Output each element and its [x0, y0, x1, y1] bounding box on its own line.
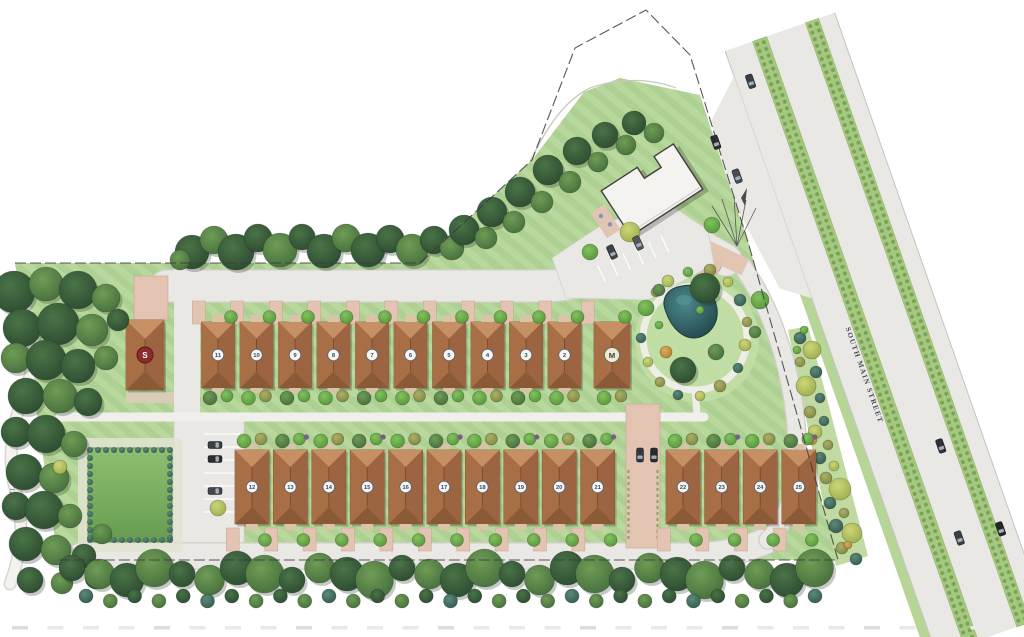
front-stoop: [251, 315, 263, 322]
front-stoop: [443, 315, 455, 322]
tree-icon: [690, 273, 720, 303]
car-icon: [651, 448, 658, 462]
front-stoop: [553, 524, 565, 530]
tree-icon: [687, 594, 701, 608]
tree-icon: [170, 250, 190, 270]
tree-icon: [8, 378, 44, 414]
tree-icon: [711, 589, 725, 603]
tree-icon: [696, 306, 704, 314]
tree-icon: [297, 534, 310, 547]
front-stoop: [520, 315, 532, 322]
front-stoop: [405, 315, 417, 322]
tree-icon: [485, 433, 497, 445]
unit-badge: 11: [215, 353, 222, 359]
tree-icon: [242, 391, 256, 405]
tree-icon: [622, 111, 646, 135]
shrub-icon: [304, 434, 309, 439]
unit-badge: 16: [402, 485, 409, 491]
front-stoop: [438, 524, 450, 530]
tree-icon: [58, 504, 82, 528]
tree-icon: [107, 309, 129, 331]
townhouse-unit: 9: [279, 315, 314, 393]
tree-icon: [527, 534, 540, 547]
tree-icon: [601, 433, 613, 445]
tree-icon: [79, 589, 93, 603]
tree-icon: [803, 341, 821, 359]
front-stoop: [793, 524, 805, 530]
tree-icon: [795, 357, 805, 367]
tree-icon: [475, 227, 497, 249]
tree-icon: [568, 390, 580, 402]
unit-badge: 10: [253, 353, 260, 359]
front-stoop: [515, 524, 527, 530]
tree-icon: [784, 594, 798, 608]
tree-icon: [655, 377, 665, 387]
tree-icon: [745, 434, 759, 448]
tree-icon: [25, 491, 63, 529]
car-icon: [637, 448, 644, 462]
tree-icon: [9, 527, 43, 561]
tree-icon: [695, 391, 705, 401]
tree-icon: [6, 454, 42, 490]
townhouse-unit: 16: [389, 444, 425, 530]
unit-driveway: [582, 301, 595, 324]
tree-icon: [375, 390, 387, 402]
tree-icon: [759, 589, 773, 603]
tree-icon: [489, 534, 502, 547]
front-stoop: [716, 524, 728, 530]
tree-icon: [635, 553, 665, 583]
shrub-icon: [812, 434, 817, 439]
front-stoop: [476, 524, 488, 530]
tree-icon: [531, 191, 553, 213]
tree-icon: [29, 267, 63, 301]
tree-icon: [37, 303, 79, 345]
tree-icon: [733, 363, 743, 373]
tree-icon: [340, 311, 353, 324]
unit-badge: 13: [287, 485, 294, 491]
tree-icon: [452, 390, 464, 402]
tree-icon: [796, 376, 816, 396]
tree-icon: [27, 415, 65, 453]
tree-icon: [704, 217, 720, 233]
tree-icon: [456, 311, 469, 324]
tree-icon: [85, 559, 115, 589]
tree-icon: [302, 311, 315, 324]
tree-icon: [725, 433, 737, 445]
side-drive: [174, 268, 200, 422]
tree-icon: [293, 433, 305, 445]
tree-icon: [391, 434, 405, 448]
townhouse-unit: 4: [471, 315, 506, 393]
townhouse-unit: 25: [782, 444, 818, 530]
tree-icon: [260, 390, 272, 402]
tree-icon: [707, 434, 721, 448]
tree-icon: [305, 553, 335, 583]
tree-icon: [638, 594, 652, 608]
tree-icon: [415, 559, 445, 589]
tree-icon: [3, 309, 41, 347]
tree-icon: [176, 589, 190, 603]
tree-icon: [280, 391, 294, 405]
townhouse-unit: 13: [273, 444, 309, 530]
tree-icon: [544, 434, 558, 448]
tree-icon: [643, 357, 653, 367]
tree-icon: [419, 589, 433, 603]
tree-icon: [379, 311, 392, 324]
townhouse-unit: 8: [317, 315, 352, 393]
bottom-edge-marks: [12, 626, 987, 630]
tree-icon: [619, 311, 632, 324]
tree-icon: [616, 135, 636, 155]
tree-icon: [686, 433, 698, 445]
tree-icon: [808, 589, 822, 603]
tree-icon: [275, 434, 289, 448]
tree-icon: [76, 314, 108, 346]
tree-icon: [43, 379, 77, 413]
townhouse-unit: 5: [433, 315, 468, 393]
front-stoop: [289, 315, 301, 322]
tree-icon: [1, 417, 31, 447]
front-stoop: [592, 524, 604, 530]
tree-icon: [571, 311, 584, 324]
tree-icon: [842, 523, 862, 543]
tree-icon: [796, 549, 834, 587]
tree-icon: [844, 541, 852, 549]
townhouse-unit: 18: [465, 444, 501, 530]
townhouse-unit: 11: [202, 315, 237, 393]
site-plan-rendering: S111098765432M12131415161718192021222324…: [0, 0, 1024, 637]
front-stoop: [400, 524, 412, 530]
tree-icon: [273, 589, 287, 603]
tree-icon: [550, 391, 564, 405]
tree-icon: [414, 390, 426, 402]
townhouse-unit: 12: [235, 444, 271, 530]
tree-icon: [53, 460, 67, 474]
tree-icon: [370, 433, 382, 445]
townhouse-unit: 14: [312, 444, 348, 530]
tree-icon: [823, 440, 833, 450]
tree-icon: [451, 534, 464, 547]
tree-icon: [662, 275, 674, 287]
sales-office-badge: S: [142, 351, 148, 360]
tree-icon: [805, 534, 818, 547]
front-stoop: [323, 524, 335, 530]
tree-icon: [237, 434, 251, 448]
townhouse-unit: 3: [510, 315, 545, 393]
sales-office-court: [134, 276, 168, 320]
site-plan-canvas: S111098765432M12131415161718192021222324…: [0, 0, 1024, 637]
front-stoop: [361, 524, 373, 530]
tree-icon: [298, 390, 310, 402]
tree-icon: [92, 284, 120, 312]
townhouse-unit: 21: [581, 444, 617, 530]
tree-icon: [533, 155, 563, 185]
tree-icon: [723, 277, 733, 287]
tree-icon: [374, 534, 387, 547]
tree-icon: [477, 197, 507, 227]
front-stoop: [328, 315, 340, 322]
tree-icon: [505, 177, 535, 207]
unit-badge: 17: [441, 485, 448, 491]
tree-icon: [739, 339, 751, 351]
tree-icon: [824, 497, 836, 509]
tree-icon: [492, 594, 506, 608]
tree-icon: [829, 519, 843, 533]
tree-icon: [735, 594, 749, 608]
model-home-building: M: [594, 322, 632, 391]
tree-icon: [103, 594, 117, 608]
unit-driveway: [657, 528, 670, 551]
tree-icon: [395, 594, 409, 608]
tree-icon: [763, 433, 775, 445]
tree-icon: [524, 433, 536, 445]
shrub-icon: [457, 434, 462, 439]
tree-icon: [653, 284, 665, 296]
tree-icon: [491, 390, 503, 402]
tree-icon: [582, 244, 598, 260]
tree-icon: [529, 390, 541, 402]
tree-icon: [819, 416, 829, 426]
tree-icon: [225, 311, 238, 324]
tree-icon: [152, 594, 166, 608]
tree-icon: [434, 391, 448, 405]
tree-icon: [322, 589, 336, 603]
tree-icon: [820, 472, 832, 484]
tree-icon: [136, 549, 174, 587]
tree-icon: [94, 346, 118, 370]
shrub-icon: [534, 434, 539, 439]
car-icon: [208, 456, 222, 463]
tree-icon: [576, 555, 614, 593]
tree-icon: [604, 534, 617, 547]
front-stoop: [677, 524, 689, 530]
tree-icon: [533, 311, 546, 324]
tree-icon: [74, 388, 102, 416]
tree-icon: [389, 555, 415, 581]
tree-icon: [670, 357, 696, 383]
tree-icon: [255, 433, 267, 445]
tree-icon: [352, 434, 366, 448]
tree-icon: [319, 391, 333, 405]
unit-badge: 21: [594, 485, 601, 491]
tree-icon: [447, 433, 459, 445]
tree-icon: [636, 333, 646, 343]
tree-icon: [683, 267, 693, 277]
tree-icon: [61, 349, 95, 383]
tree-icon: [815, 393, 825, 403]
unit-badge: 25: [796, 485, 803, 491]
front-stoop: [284, 524, 296, 530]
tree-icon: [314, 434, 328, 448]
unit-badge: 15: [364, 485, 371, 491]
townhouse-unit: 23: [705, 444, 741, 530]
unit-driveway: [226, 528, 239, 551]
front-stoop: [246, 524, 258, 530]
tree-icon: [249, 594, 263, 608]
unit-badge: 19: [518, 485, 525, 491]
tree-icon: [583, 434, 597, 448]
townhouse-unit: 7: [356, 315, 391, 393]
tree-icon: [466, 549, 504, 587]
tree-icon: [473, 391, 487, 405]
townhouse-unit: 6: [394, 315, 429, 393]
townhouse-unit: 24: [743, 444, 779, 530]
tree-icon: [221, 390, 233, 402]
tree-icon: [541, 594, 555, 608]
tree-icon: [638, 300, 654, 316]
car-icon: [208, 442, 222, 449]
model-home-badge: M: [609, 351, 615, 360]
tree-icon: [592, 122, 618, 148]
tree-icon: [499, 561, 525, 587]
townhouse-unit: 17: [427, 444, 463, 530]
townhouse-unit: 22: [666, 444, 702, 530]
tree-icon: [742, 317, 752, 327]
tree-icon: [337, 390, 349, 402]
tree-icon: [26, 340, 66, 380]
shrub-icon: [735, 434, 740, 439]
tree-icon: [409, 433, 421, 445]
tree-icon: [417, 311, 430, 324]
unit-badge: 12: [249, 485, 256, 491]
tree-icon: [201, 594, 215, 608]
townhouse-unit: 19: [504, 444, 540, 530]
tree-icon: [332, 433, 344, 445]
unit-badge: 22: [680, 485, 687, 491]
front-stoop: [212, 315, 224, 322]
tree-icon: [800, 326, 808, 334]
tree-icon: [589, 594, 603, 608]
car-icon: [208, 488, 222, 495]
tree-icon: [128, 589, 142, 603]
tree-icon: [429, 434, 443, 448]
tree-icon: [655, 321, 663, 329]
tree-icon: [468, 589, 482, 603]
tree-icon: [784, 434, 798, 448]
tree-icon: [516, 589, 530, 603]
tree-icon: [662, 589, 676, 603]
tree-icon: [563, 137, 591, 165]
tree-icon: [59, 555, 85, 581]
tree-icon: [444, 594, 458, 608]
tree-icon: [17, 567, 43, 593]
tree-icon: [749, 326, 761, 338]
tree-icon: [714, 380, 726, 392]
tree-icon: [562, 433, 574, 445]
townhouse-unit: 20: [542, 444, 578, 530]
tree-icon: [728, 534, 741, 547]
tree-icon: [59, 271, 97, 309]
tree-icon: [412, 534, 425, 547]
tree-icon: [449, 215, 479, 245]
front-stoop: [559, 315, 571, 322]
tree-icon: [829, 478, 851, 500]
tree-icon: [335, 534, 348, 547]
tree-icon: [719, 555, 745, 581]
tree-icon: [559, 171, 581, 193]
shrub-icon: [611, 434, 616, 439]
townhouse-unit: 2: [548, 315, 583, 393]
tree-icon: [673, 390, 683, 400]
tree-icon: [668, 434, 682, 448]
tree-icon: [210, 500, 226, 516]
unit-badge: 18: [479, 485, 486, 491]
tree-icon: [767, 534, 780, 547]
tree-icon: [263, 311, 276, 324]
central-driveway: [626, 404, 660, 548]
tree-icon: [708, 344, 724, 360]
tree-icon: [588, 152, 608, 172]
tree-icon: [734, 294, 746, 306]
tree-icon: [660, 346, 672, 358]
townhouse-unit: 15: [350, 444, 386, 530]
unit-driveway: [192, 301, 205, 324]
tree-icon: [615, 390, 627, 402]
tree-icon: [357, 391, 371, 405]
tree-icon: [169, 561, 195, 587]
front-stoop: [754, 524, 766, 530]
tree-icon: [371, 589, 385, 603]
tree-icon: [467, 434, 481, 448]
tree-icon: [690, 534, 703, 547]
tree-icon: [566, 534, 579, 547]
tree-icon: [92, 524, 112, 544]
tree-icon: [745, 559, 775, 589]
tree-icon: [565, 589, 579, 603]
tree-icon: [225, 589, 239, 603]
shrub-icon: [381, 434, 386, 439]
tree-icon: [246, 555, 284, 593]
unit-badge: 23: [718, 485, 725, 491]
tree-icon: [511, 391, 525, 405]
tree-icon: [810, 366, 822, 378]
tree-icon: [279, 567, 305, 593]
unit-badge: 20: [556, 485, 563, 491]
sales-office-building: S: [126, 320, 166, 393]
tree-icon: [503, 211, 525, 233]
unit-badge: 14: [326, 485, 333, 491]
tree-icon: [61, 431, 87, 457]
tree-icon: [494, 311, 507, 324]
tree-icon: [298, 594, 312, 608]
tree-icon: [804, 406, 816, 418]
townhouse-unit: 10: [240, 315, 275, 393]
tree-icon: [829, 461, 839, 471]
tree-icon: [506, 434, 520, 448]
tree-icon: [614, 589, 628, 603]
tree-icon: [597, 391, 611, 405]
front-stoop: [482, 315, 494, 322]
tree-icon: [203, 391, 217, 405]
unit-badge: 24: [757, 485, 764, 491]
tree-icon: [839, 508, 849, 518]
tree-icon: [346, 594, 360, 608]
tree-icon: [644, 123, 664, 143]
tree-icon: [259, 534, 272, 547]
tree-icon: [850, 553, 862, 565]
front-stoop: [366, 315, 378, 322]
tree-icon: [396, 391, 410, 405]
tree-icon: [793, 346, 801, 354]
sales-office-walk: [126, 392, 174, 403]
